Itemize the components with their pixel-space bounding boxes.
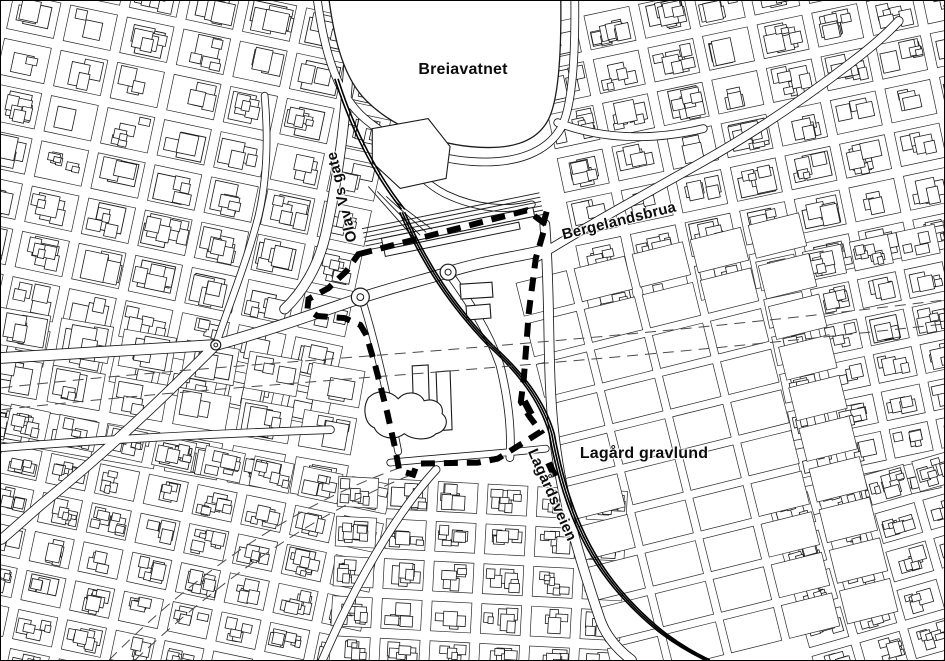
map-drawing	[1, 1, 944, 660]
city-plan-map: Breiavatnet Olav Vs gate Bergelandsbrua …	[0, 0, 945, 661]
